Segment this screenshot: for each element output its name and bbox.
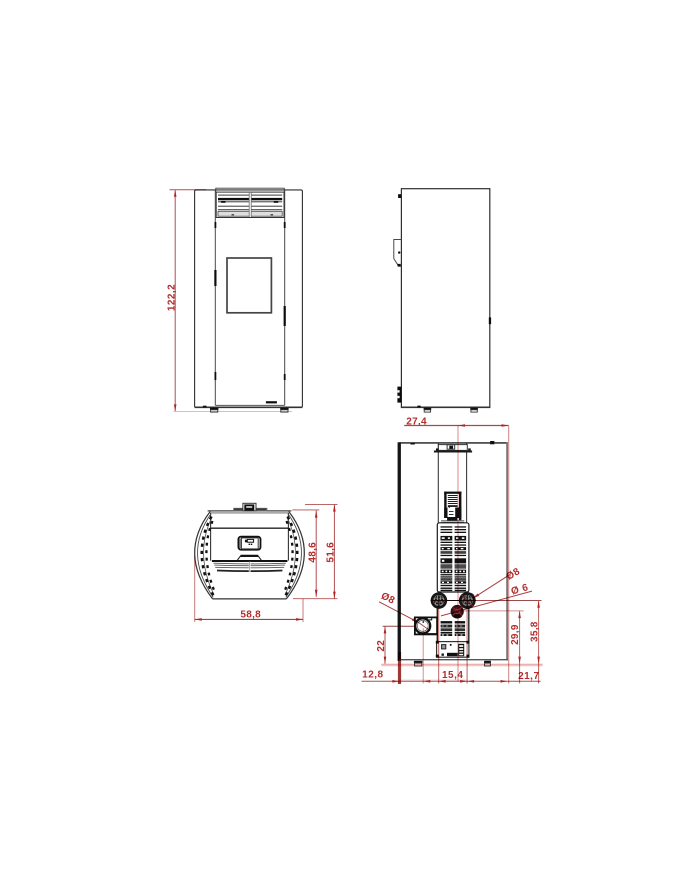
svg-text:122,2: 122,2 [166, 284, 177, 311]
svg-text:29,9: 29,9 [510, 624, 521, 645]
svg-text:12,8: 12,8 [362, 670, 383, 681]
svg-text:21,7: 21,7 [518, 671, 539, 682]
svg-text:58,8: 58,8 [240, 609, 261, 620]
svg-text:51,6: 51,6 [326, 542, 337, 563]
svg-text:27,4: 27,4 [406, 417, 427, 428]
svg-text:22: 22 [376, 640, 387, 652]
svg-text:Ø8: Ø8 [379, 591, 397, 607]
svg-text:Ø 6: Ø 6 [510, 582, 530, 597]
svg-text:15,4: 15,4 [442, 670, 463, 681]
svg-text:48,6: 48,6 [307, 542, 318, 563]
svg-text:35,8: 35,8 [529, 621, 540, 642]
